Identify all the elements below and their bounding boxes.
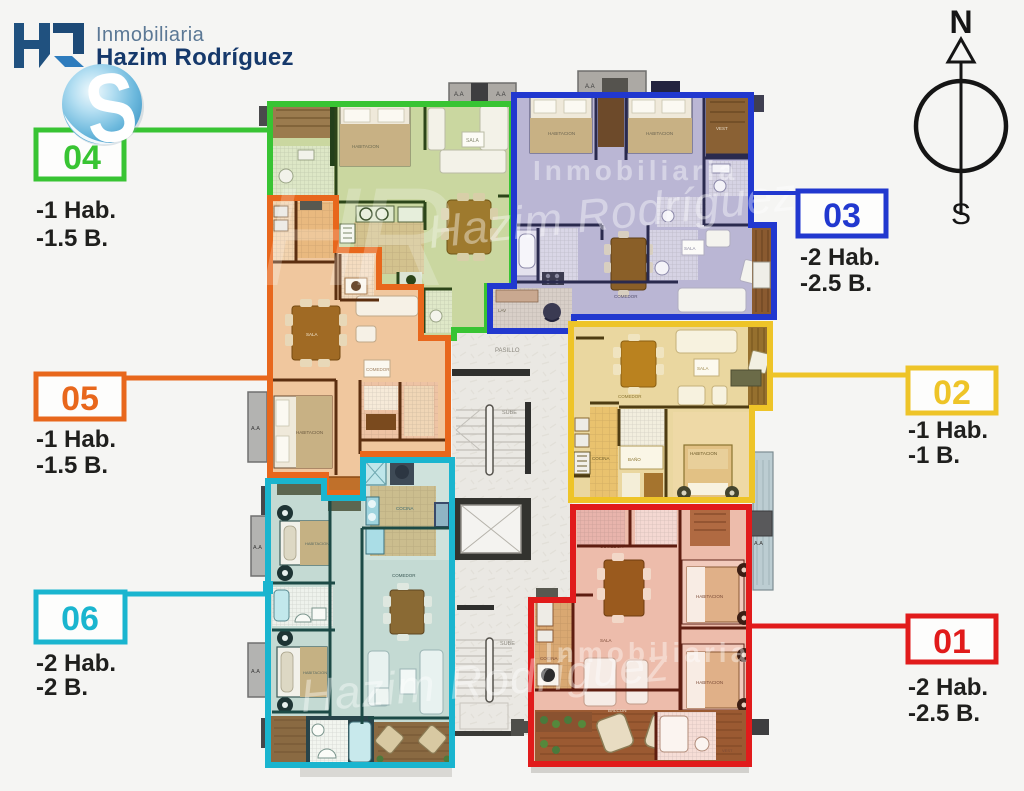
svg-text:-1.5 B.: -1.5 B. (36, 225, 108, 252)
svg-text:-2 Hab.: -2 Hab. (800, 244, 880, 271)
svg-text:COMEDOR: COMEDOR (366, 367, 390, 372)
svg-text:SALA: SALA (306, 332, 318, 337)
svg-text:HABITACION: HABITACION (690, 451, 717, 456)
svg-text:-1.5 B.: -1.5 B. (36, 452, 108, 479)
svg-text:-1 Hab.: -1 Hab. (908, 417, 988, 444)
svg-text:05: 05 (61, 380, 99, 418)
svg-text:COMEDOR: COMEDOR (618, 394, 642, 399)
svg-text:A.A: A.A (754, 541, 763, 547)
svg-text:HABITACION: HABITACION (352, 144, 379, 149)
svg-text:A.A: A.A (251, 426, 260, 432)
svg-text:HABITACION: HABITACION (305, 541, 329, 546)
svg-text:06: 06 (61, 600, 99, 638)
svg-text:03: 03 (823, 197, 861, 235)
svg-text:HABITACION: HABITACION (646, 131, 673, 136)
svg-text:COMEDOR: COMEDOR (614, 294, 638, 299)
svg-text:-1 Hab.: -1 Hab. (36, 426, 116, 453)
svg-text:A.A: A.A (585, 84, 595, 90)
svg-text:-2 Hab.: -2 Hab. (908, 674, 988, 701)
svg-text:BALCON: BALCON (608, 708, 627, 713)
svg-text:HABITACION: HABITACION (696, 594, 723, 599)
svg-text:-2 Hab.: -2 Hab. (36, 650, 116, 677)
svg-text:SALA: SALA (697, 366, 709, 371)
svg-text:SALA: SALA (466, 138, 479, 144)
svg-text:02: 02 (933, 374, 971, 412)
svg-text:Inmobiliaria: Inmobiliaria (96, 24, 205, 46)
svg-text:A.A: A.A (496, 92, 506, 98)
svg-text:BAÑO: BAÑO (628, 456, 641, 462)
svg-text:HABITACION: HABITACION (296, 430, 323, 435)
svg-text:SUBE: SUBE (502, 410, 517, 416)
svg-text:-1 Hab.: -1 Hab. (36, 197, 116, 224)
svg-text:-2 B.: -2 B. (36, 674, 88, 701)
svg-text:VEST: VEST (716, 126, 728, 131)
svg-text:PASILLO: PASILLO (495, 348, 520, 354)
svg-text:HABITACION: HABITACION (696, 680, 723, 685)
svg-text:-1 B.: -1 B. (908, 442, 960, 469)
svg-text:SUBE: SUBE (500, 641, 515, 647)
svg-text:A.A: A.A (454, 92, 464, 98)
svg-text:COCINA: COCINA (592, 456, 610, 461)
svg-text:A.A: A.A (251, 669, 260, 675)
svg-text:S: S (951, 198, 971, 231)
svg-text:LAV: LAV (498, 308, 506, 313)
svg-text:HR: HR (260, 158, 450, 315)
svg-text:A.A: A.A (253, 545, 262, 551)
svg-text:VEST: VEST (722, 748, 733, 753)
svg-text:COCINA: COCINA (396, 506, 414, 511)
svg-text:-2.5 B.: -2.5 B. (908, 700, 980, 727)
svg-text:N: N (949, 4, 972, 40)
svg-text:SALA: SALA (684, 246, 696, 251)
svg-text:-2.5 B.: -2.5 B. (800, 270, 872, 297)
svg-text:COMEDOR: COMEDOR (392, 573, 416, 578)
svg-text:01: 01 (933, 623, 971, 661)
svg-text:HABITACION: HABITACION (548, 131, 575, 136)
